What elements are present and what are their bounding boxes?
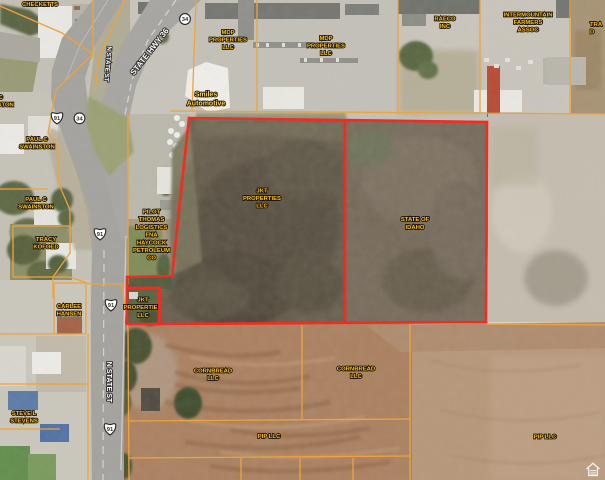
svg-text:STEVE L: STEVE L	[12, 411, 37, 417]
svg-text:91: 91	[54, 116, 61, 122]
svg-text:Smiles: Smiles	[195, 92, 218, 99]
svg-text:PROPERTIES: PROPERTIES	[307, 44, 345, 50]
svg-text:TRA: TRA	[590, 22, 603, 28]
svg-text:MDP: MDP	[319, 36, 332, 42]
svg-text:JKT: JKT	[137, 298, 149, 304]
svg-text:FNA: FNA	[145, 233, 158, 239]
svg-text:LLC: LLC	[320, 51, 332, 57]
svg-text:INC: INC	[440, 24, 451, 30]
svg-text:PAUL C: PAUL C	[25, 197, 47, 203]
svg-text:RAECO: RAECO	[434, 17, 456, 23]
svg-text:LLC: LLC	[137, 313, 149, 319]
svg-text:CORNBREAD: CORNBREAD	[337, 367, 375, 373]
svg-text:LLC: LLC	[350, 374, 362, 380]
svg-text:LLC: LLC	[256, 204, 268, 210]
svg-text:PROPERTIE: PROPERTIE	[123, 305, 157, 311]
svg-text:PIP LLC: PIP LLC	[258, 434, 281, 440]
svg-text:SWAINSTON: SWAINSTON	[19, 145, 55, 151]
svg-text:IDAHO: IDAHO	[406, 225, 425, 231]
svg-text:PAUL C: PAUL C	[26, 137, 48, 143]
svg-text:D: D	[590, 30, 594, 36]
svg-text:34: 34	[76, 116, 83, 122]
svg-text:91: 91	[107, 427, 114, 433]
svg-text:MDP: MDP	[221, 30, 234, 36]
svg-text:STATE OF: STATE OF	[401, 217, 430, 223]
svg-text:ASSOC: ASSOC	[518, 28, 540, 34]
svg-text:TRACY: TRACY	[36, 237, 56, 243]
svg-text:CORNBREAD: CORNBREAD	[194, 369, 232, 375]
svg-text:PILOT: PILOT	[143, 210, 161, 216]
svg-text:PIP LLC: PIP LLC	[534, 435, 557, 441]
svg-text:INTERMOUNTAIN: INTERMOUNTAIN	[504, 13, 553, 19]
svg-text:LOGISTICS: LOGISTICS	[136, 225, 168, 231]
svg-text:HAYCOCK: HAYCOCK	[137, 240, 167, 246]
svg-text:KOFOED: KOFOED	[33, 245, 58, 251]
svg-text:THOMAS: THOMAS	[139, 217, 165, 223]
svg-text:34: 34	[182, 17, 189, 23]
svg-text:91: 91	[97, 232, 104, 238]
svg-text:CO: CO	[147, 256, 156, 262]
svg-text:CHECKETTS: CHECKETTS	[22, 2, 58, 8]
svg-text:CARLEE: CARLEE	[57, 304, 81, 310]
svg-text:N STATE ST: N STATE ST	[105, 362, 114, 403]
svg-text:PETROLEUM: PETROLEUM	[133, 248, 170, 254]
svg-text:PROPERTIES: PROPERTIES	[243, 196, 281, 202]
svg-text:Automotive: Automotive	[187, 101, 226, 108]
svg-text:STEVENS: STEVENS	[10, 419, 38, 425]
svg-text:LLC: LLC	[222, 45, 234, 51]
svg-text:LLC: LLC	[207, 376, 219, 382]
svg-text:PROPERTIES: PROPERTIES	[209, 38, 247, 44]
svg-text:91: 91	[108, 303, 115, 309]
svg-text:JKT: JKT	[256, 189, 268, 195]
svg-text:SWAINSTON: SWAINSTON	[18, 205, 54, 211]
svg-text:HANSEN: HANSEN	[57, 312, 82, 318]
svg-text:SWAINSTON: SWAINSTON	[0, 103, 14, 109]
svg-text:FARMERS: FARMERS	[514, 20, 543, 26]
